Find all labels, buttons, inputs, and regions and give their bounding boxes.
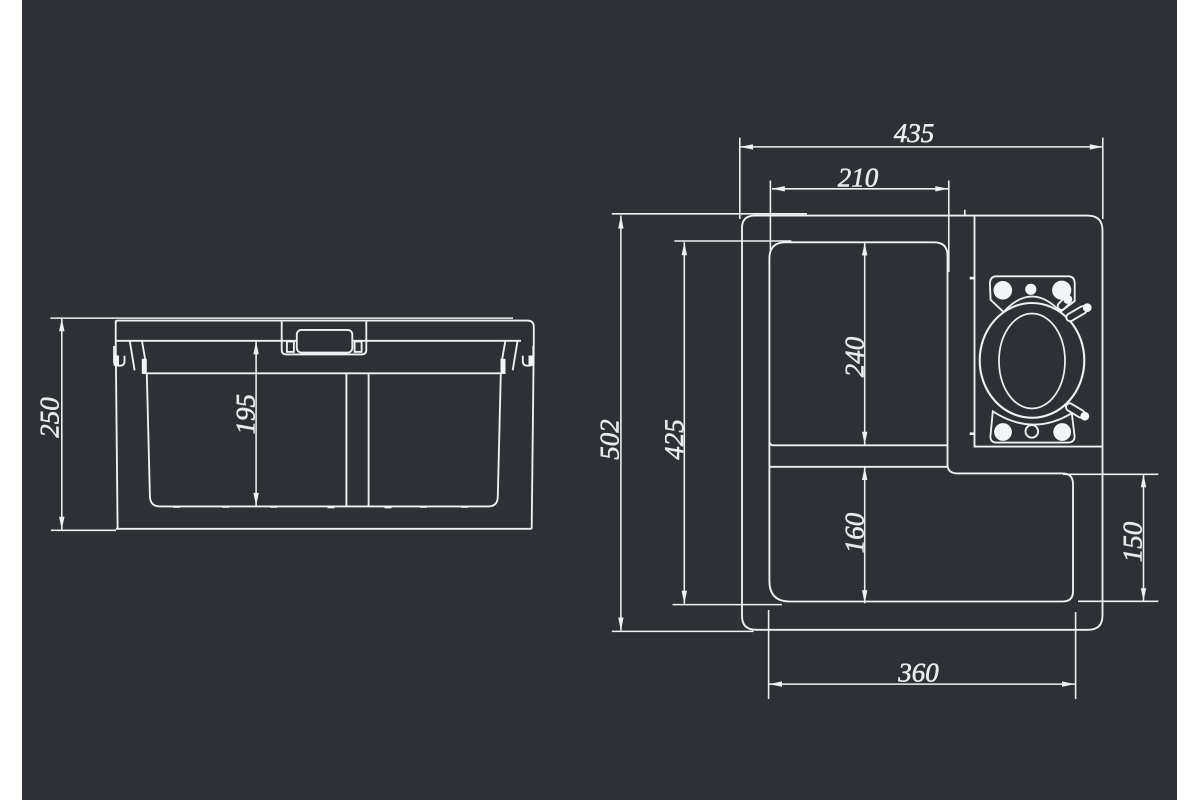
svg-text:502: 502 — [594, 419, 624, 460]
svg-text:425: 425 — [659, 419, 689, 460]
svg-text:150: 150 — [1118, 521, 1148, 562]
svg-text:360: 360 — [897, 658, 939, 688]
svg-text:250: 250 — [35, 397, 65, 438]
svg-text:435: 435 — [894, 118, 935, 148]
svg-text:160: 160 — [840, 512, 870, 553]
svg-text:240: 240 — [840, 336, 870, 377]
svg-text:195: 195 — [231, 394, 261, 435]
svg-text:210: 210 — [838, 163, 879, 193]
